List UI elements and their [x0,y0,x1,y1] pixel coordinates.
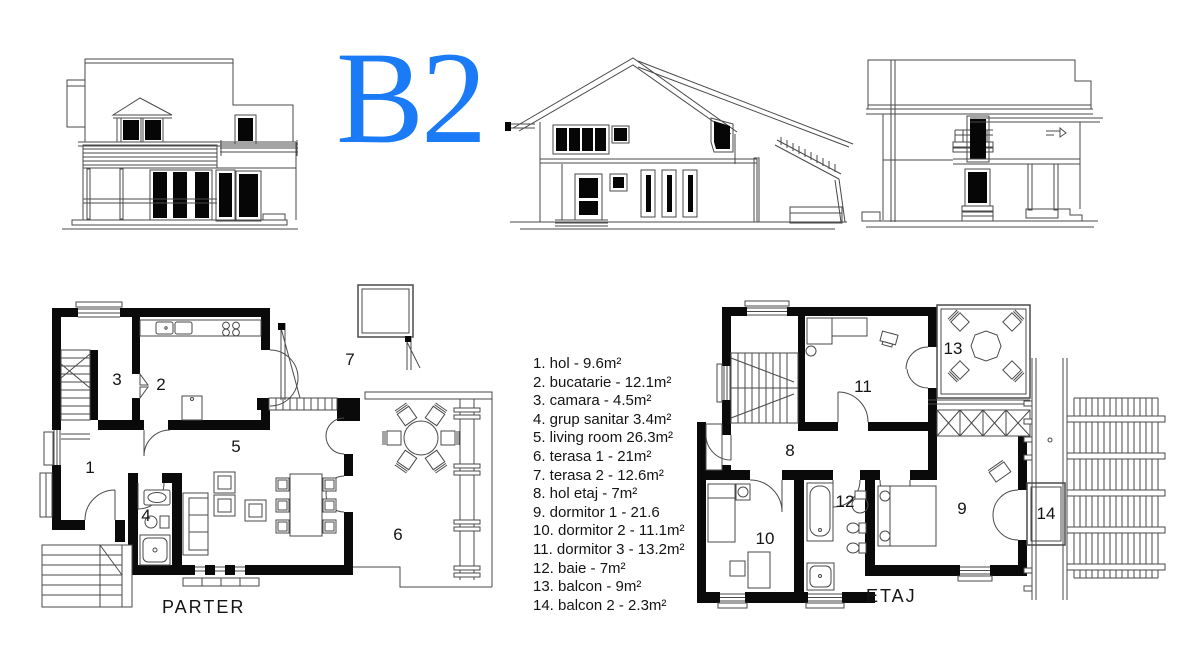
legend-item: 14. balcon 2 - 2.3m² [533,597,684,616]
etaj-doors [706,347,1018,540]
front-ground-floor [83,142,296,221]
etaj-walls [697,307,1027,603]
x-railing [937,410,1030,436]
front-dormer [113,98,172,142]
blueprint-sheet: B2 [0,0,1200,653]
plan-code-title: B2 [336,32,484,164]
bathroom-fixtures [140,490,170,565]
dining-table [276,474,336,536]
floor-label-parter: PARTER [162,597,245,618]
floor-label-etaj: ETAJ [866,586,917,607]
kitchen-counter [140,320,261,336]
room-number-label: 9 [957,499,966,519]
room-number-label: 14 [1037,504,1056,524]
front-elevation-drawing [60,52,300,237]
sofa [183,493,208,555]
room-number-label: 1 [85,458,94,478]
rear-balcony [953,116,993,162]
room-number-label: 5 [231,437,240,457]
room-legend: 1. hol - 9.6m² 2. bucatarie - 12.1m² 3. … [533,355,684,615]
room-number-label: 6 [393,525,402,545]
room-number-label: 2 [156,375,165,395]
legend-item: 3. camara - 4.5m² [533,392,684,411]
entry-steps [42,545,132,607]
side-elevation-drawing [505,52,850,237]
rear-lower-wall [962,164,1094,221]
fridge [182,396,202,420]
room-number-label: 8 [785,441,794,461]
coffee-tables [214,472,235,516]
room-number-label: 4 [141,506,150,526]
legend-item: 8. hol etaj - 7m² [533,485,684,504]
bedroom3-furniture [806,318,898,356]
room-number-label: 3 [112,370,121,390]
room-number-label: 10 [756,529,775,549]
rear-ground-line [862,212,1098,227]
armchair [245,500,266,521]
rear-downpipe [883,60,953,222]
rear-roof [866,60,1093,114]
legend-item: 4. grup sanitar 3.4m² [533,411,684,430]
legend-item: 9. dormitor 1 - 21.6 [533,504,684,523]
front-ground-line [62,220,298,229]
legend-item: 6. terasa 1 - 21m² [533,448,684,467]
pergola-slats [1067,398,1165,578]
front-pergola-slats [83,145,217,168]
legend-item: 11. dormitor 3 - 13.2m² [533,541,684,560]
room-number-label: 13 [944,339,963,359]
front-balcony [220,115,298,156]
legend-item: 10. dormitor 2 - 11.1m² [533,522,684,541]
front-roof [67,59,296,146]
legend-item: 12. baie - 7m² [533,560,684,579]
legend-item: 2. bucatarie - 12.1m² [533,374,684,393]
room-number-label: 12 [836,492,855,512]
legend-item: 13. balcon - 9m² [533,578,684,597]
room-number-label: 7 [345,350,354,370]
side-roof-ladder [775,137,845,222]
etaj-plan-drawing [690,298,1165,613]
etaj-floor-plan: 8 9 10 11 12 13 14 ETAJ [690,298,1165,613]
parter-plan-drawing [40,278,500,628]
rear-elevation-drawing [858,52,1103,234]
terrace-planter [358,285,413,337]
legend-item: 7. terasa 2 - 12.6m² [533,467,684,486]
bedroom1-furniture [878,460,1011,546]
round-table [383,403,459,473]
room-number-label: 11 [854,377,872,397]
etaj-stairs [731,353,798,423]
legend-item: 1. hol - 9.6m² [533,355,684,374]
parter-floor-plan: 1 2 3 4 5 6 7 PARTER [40,278,500,628]
pergola-posts [454,399,480,580]
legend-item: 5. living room 26.3m² [533,429,684,448]
parter-stairs [61,350,90,439]
side-ground-floor [555,158,842,229]
